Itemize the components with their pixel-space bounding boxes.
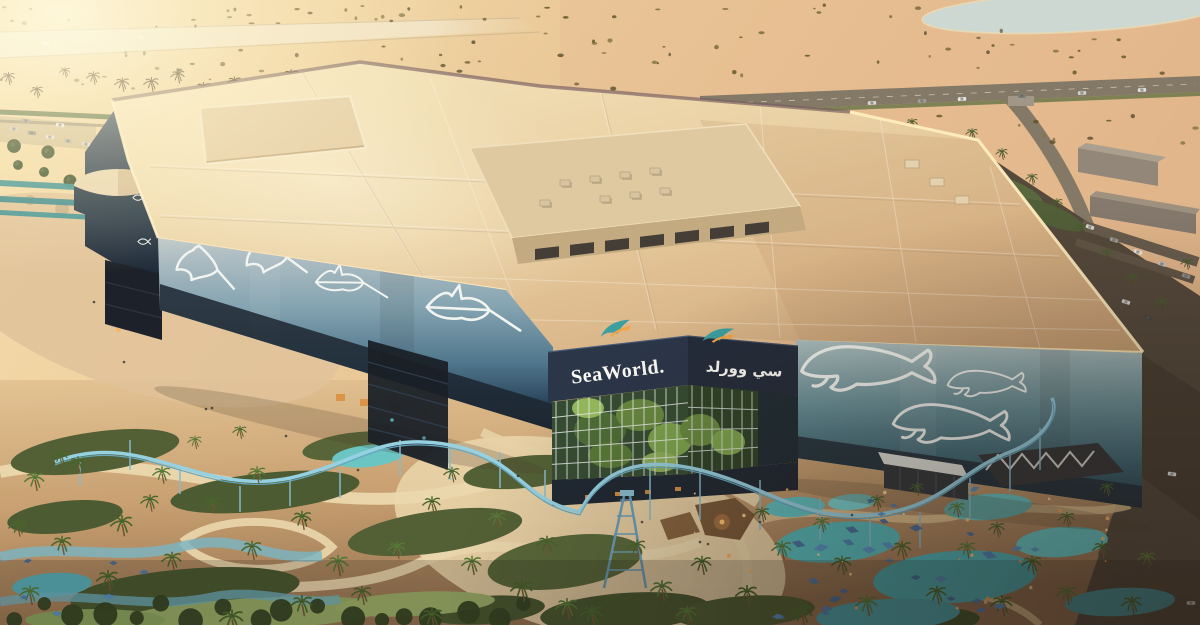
lighting-overlays <box>0 0 1200 625</box>
aerial-rendering: SeaWorld. سي وورلد <box>0 0 1200 625</box>
scene-svg: SeaWorld. سي وورلد <box>0 0 1200 625</box>
